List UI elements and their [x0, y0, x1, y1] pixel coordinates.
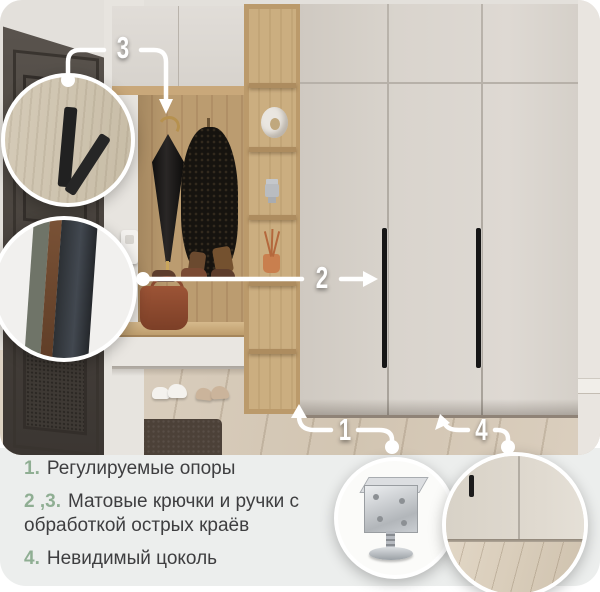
plinth-door-face [446, 456, 584, 542]
wardrobe [300, 4, 578, 418]
bench-drawer [112, 337, 246, 369]
legend-text-3: Невидимый цоколь [47, 548, 217, 569]
shelf-board [249, 83, 296, 88]
leather-bag [140, 286, 188, 330]
wardrobe-seam [300, 82, 578, 84]
open-shelf-column [244, 4, 301, 414]
shelf-board [249, 349, 296, 354]
cabinet-underside [112, 86, 246, 95]
legend-item-3: 4.Невидимый цоколь [24, 547, 354, 571]
callout-4-label: 4 [472, 415, 491, 445]
shelf-shoes [181, 268, 207, 281]
shelf-board [249, 281, 296, 286]
wardrobe-handle-right [476, 228, 481, 368]
hook-detail-inset [1, 73, 135, 207]
product-infographic: 3 2 1 4 1.Регулируемые опоры 2 ,3.Матовы… [0, 0, 600, 592]
shelf-board [249, 215, 296, 220]
wardrobe-seam [481, 4, 483, 418]
donut-vase [261, 107, 288, 138]
foot-bracket-body [364, 485, 418, 533]
reed-diffuser [263, 254, 280, 273]
legend-text-2: Матовые крючки и ручки с обработкой остр… [24, 491, 299, 536]
baseboard [578, 378, 600, 394]
bench-shadow [112, 366, 246, 376]
plinth-door-seam [518, 456, 520, 542]
plinth-detail-inset [442, 452, 588, 592]
feature-legend: 1.Регулируемые опоры 2 ,3.Матовые крючки… [24, 457, 354, 571]
callout-2-label: 2 [308, 263, 335, 293]
callout-1-label: 1 [336, 415, 355, 445]
legend-item-1: 1.Регулируемые опоры [24, 457, 354, 481]
robot-figurine [265, 184, 279, 197]
legend-text-1: Регулируемые опоры [47, 458, 236, 479]
shelf-shoes [211, 269, 235, 281]
callout-3-label: 3 [110, 33, 136, 63]
legend-item-2: 2 ,3.Матовые крючки и ручки с обработкой… [24, 490, 354, 538]
plinth-floor [446, 542, 584, 592]
wardrobe-seam [387, 4, 389, 418]
legend-num-2: 2 ,3. [24, 491, 61, 512]
adjustable-foot-detail-inset [334, 457, 456, 579]
shelf-board [249, 147, 296, 152]
legend-num-1: 1. [24, 458, 40, 479]
sneaker [168, 384, 187, 398]
legend-num-3: 4. [24, 548, 40, 569]
plinth-handle-tip [469, 475, 474, 497]
wardrobe-handle-left [382, 228, 387, 368]
foot-base [369, 547, 413, 560]
